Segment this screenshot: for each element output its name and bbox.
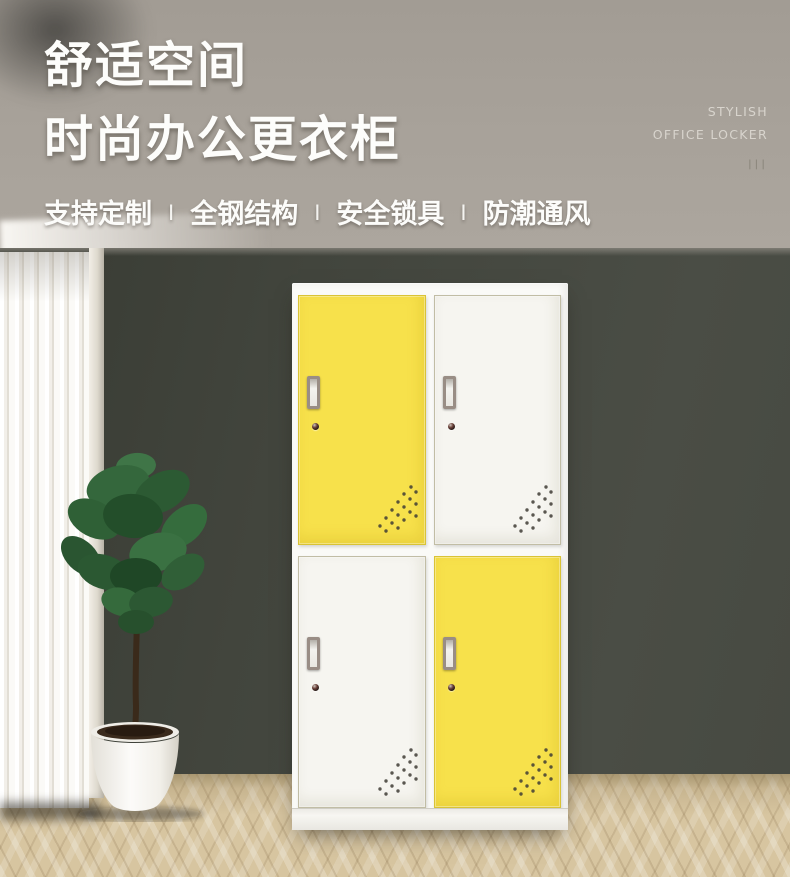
locker-base [292,808,568,830]
locker-door-bottom-right [434,556,561,808]
vent-holes [506,484,554,536]
potted-plant [36,444,246,822]
keyhole [448,423,455,430]
feature-item: 安全锁具 [336,192,444,231]
feature-list: 支持定制 Ⅰ 全钢结构 Ⅰ 安全锁具 Ⅰ 防潮通风 [44,192,591,231]
feature-item: 全钢结构 [190,192,298,231]
locker-door-top-right [434,295,561,545]
product-poster: { "header": { "title_line1": "舒适空间", "ti… [0,0,790,877]
feature-item: 防潮通风 [483,192,591,231]
door-handle [307,376,320,409]
vent-holes [371,747,419,799]
plant-pot [91,722,179,811]
keyhole [312,423,319,430]
tagline-line-1: STYLISH [653,100,768,123]
keyhole [312,684,319,691]
door-handle [443,376,456,409]
door-handle [443,637,456,670]
vent-holes [371,484,419,536]
tagline-en: STYLISH OFFICE LOCKER ||| [653,100,768,176]
locker-door-top-left [298,295,426,545]
tagline-marks: ||| [653,153,768,176]
feature-separator: Ⅰ [168,201,174,225]
page-title: 舒适空间 时尚办公更衣柜 [44,40,401,166]
locker-cabinet [292,283,568,830]
feature-item: 支持定制 [44,192,152,231]
feature-separator: Ⅰ [314,201,320,225]
door-handle [307,637,320,670]
title-line-1: 舒适空间 [44,40,401,92]
title-line-2: 时尚办公更衣柜 [44,114,401,166]
vent-holes [506,747,554,799]
keyhole [448,684,455,691]
tagline-line-2: OFFICE LOCKER [653,123,768,146]
plant-trunk [135,622,137,736]
locker-door-bottom-left [298,556,426,808]
feature-separator: Ⅰ [460,201,466,225]
plant-leaves [53,451,215,634]
